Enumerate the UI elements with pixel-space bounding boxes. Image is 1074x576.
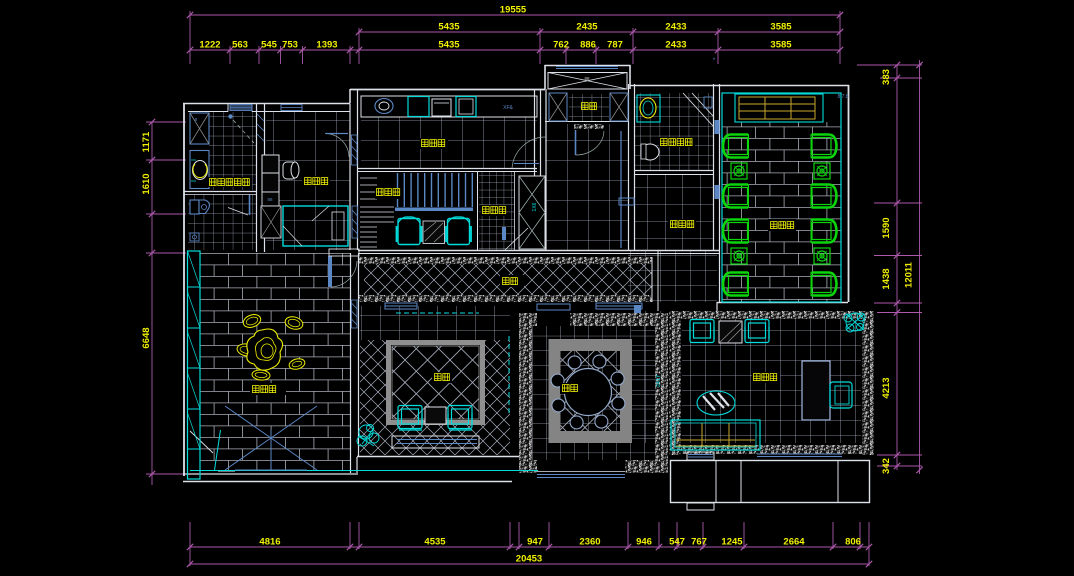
svg-text:5435: 5435 (438, 22, 460, 33)
svg-text:946: 946 (636, 537, 652, 548)
svg-text:88: 88 (584, 76, 590, 81)
svg-text:2433: 2433 (665, 40, 686, 51)
svg-text:545: 545 (261, 40, 278, 51)
svg-text:787: 787 (607, 40, 623, 51)
svg-text:2433: 2433 (665, 22, 686, 33)
svg-text:342: 342 (881, 458, 892, 474)
svg-text:6648: 6648 (141, 327, 152, 348)
svg-text:3585: 3585 (770, 22, 792, 33)
svg-text:1222: 1222 (199, 40, 220, 51)
svg-text:947: 947 (527, 537, 543, 548)
svg-text:762: 762 (553, 40, 569, 51)
svg-text:547: 547 (669, 537, 685, 548)
svg-text:12011: 12011 (904, 261, 915, 288)
svg-text:XF&: XF& (503, 105, 513, 111)
svg-text:2417: 2417 (656, 375, 662, 387)
svg-text:886: 886 (580, 40, 596, 51)
svg-text:20453: 20453 (516, 554, 542, 565)
svg-text:2435: 2435 (576, 22, 598, 33)
svg-text:563: 563 (232, 40, 248, 51)
svg-text:753: 753 (282, 40, 298, 51)
svg-text:8.7.8: 8.7.8 (837, 94, 848, 100)
svg-text:1245: 1245 (721, 537, 743, 548)
svg-text:4535: 4535 (424, 537, 446, 548)
svg-text:5435: 5435 (438, 40, 460, 51)
svg-text:88: 88 (267, 197, 273, 202)
svg-text:806: 806 (845, 537, 861, 548)
svg-text:1590: 1590 (881, 217, 892, 238)
svg-text:1171: 1171 (141, 131, 152, 152)
svg-text:1610: 1610 (141, 173, 152, 194)
svg-text:4816: 4816 (259, 537, 280, 548)
svg-text:4213: 4213 (881, 377, 892, 398)
svg-text:1438: 1438 (881, 268, 892, 289)
svg-text:2664: 2664 (783, 537, 805, 548)
svg-text:2360: 2360 (579, 537, 600, 548)
svg-text:383: 383 (881, 69, 892, 85)
svg-text:1X6: 1X6 (532, 202, 538, 211)
svg-text:3585: 3585 (770, 40, 792, 51)
svg-text:767: 767 (691, 537, 707, 548)
svg-text:1393: 1393 (316, 40, 337, 51)
svg-text:19555: 19555 (500, 5, 527, 16)
